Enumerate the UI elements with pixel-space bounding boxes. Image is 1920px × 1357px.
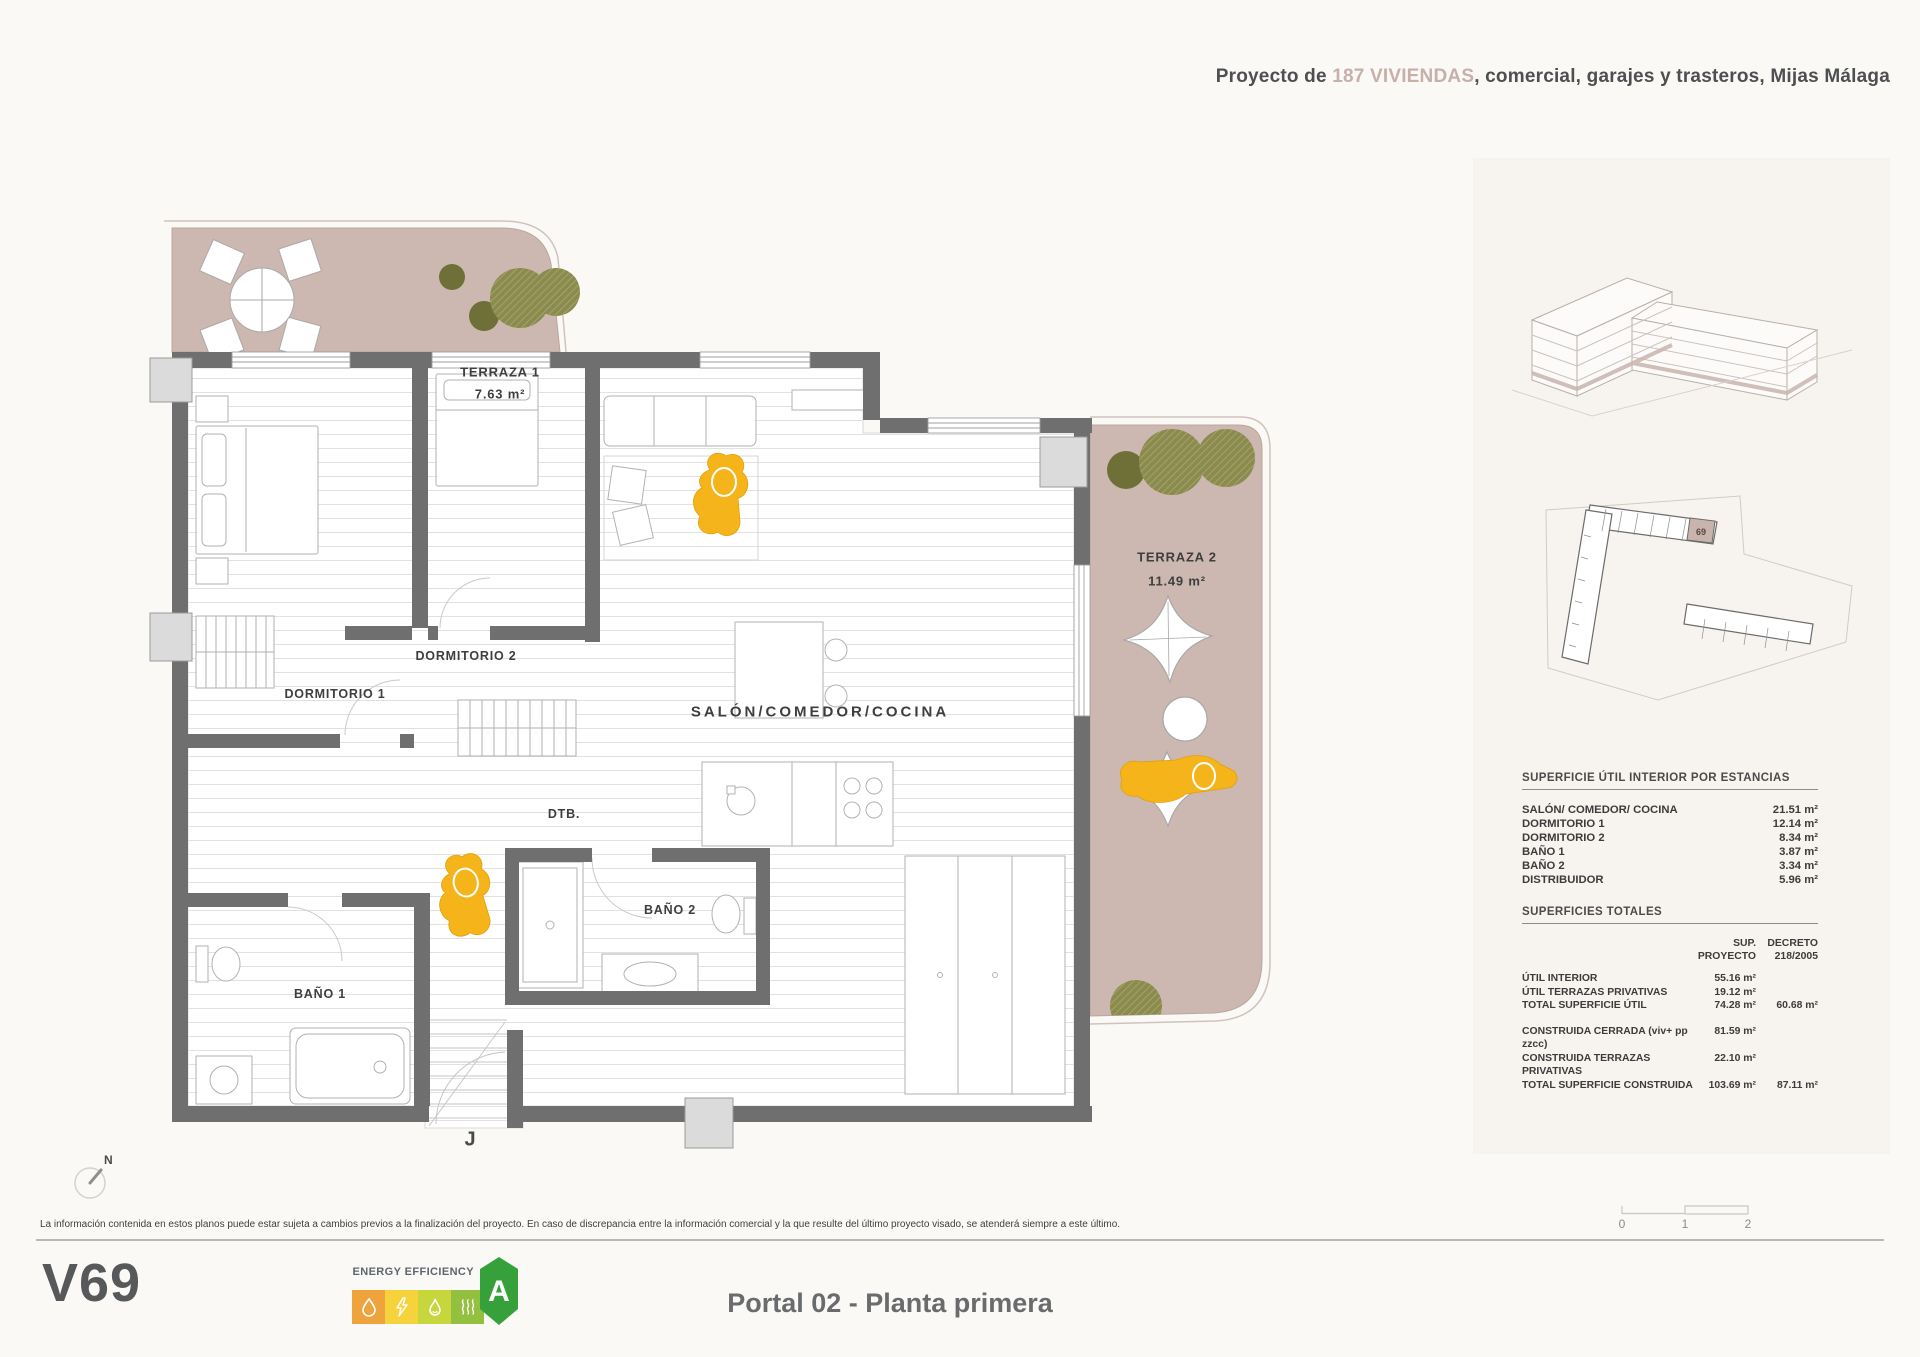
terraza1-area: 7.63 m²	[475, 387, 525, 402]
total-surfaces-table: SUPERFICIES TOTALES SUP.PROYECTO DECRETO…	[1522, 906, 1818, 1092]
room-label-dtb: DTB.	[548, 807, 580, 821]
energy-segments	[352, 1290, 484, 1324]
table-row: DORMITORIO 28.34 m²	[1522, 831, 1818, 845]
footer-divider	[36, 1239, 1884, 1241]
scale-label-2: 2	[1745, 1217, 1752, 1231]
table-row: ÚTIL INTERIOR55.16 m²	[1522, 972, 1818, 986]
north-compass: N	[62, 1150, 122, 1206]
entry-door-label: J	[464, 1129, 475, 1152]
table-row: CONSTRUIDA CERRADA (viv+ pp zzcc)81.59 m…	[1522, 1025, 1818, 1052]
scale-bar: 0 1 2	[1600, 1196, 1770, 1236]
room-label-bano2: BAÑO 2	[644, 903, 696, 917]
unit-code: V69	[42, 1252, 141, 1314]
terraza2-label: TERRAZA 2	[1137, 550, 1217, 565]
table-row: TOTAL SUPERFICIE ÚTIL74.28 m²60.68 m²	[1522, 999, 1818, 1013]
table-row: CONSTRUIDA TERRAZAS PRIVATIVAS22.10 m²	[1522, 1052, 1818, 1079]
terraza2-area: 11.49 m²	[1148, 574, 1206, 589]
kitchen-counter	[702, 762, 893, 846]
energy-rating-a-badge: A	[479, 1256, 519, 1326]
plan-title: Portal 02 - Planta primera	[560, 1288, 1220, 1319]
energy-segment-gas	[418, 1290, 451, 1324]
heat-waves-icon	[459, 1297, 477, 1317]
terraza-2-area	[1090, 417, 1270, 1032]
floor-key-plan: 69	[1540, 492, 1860, 710]
terraza-1-area	[164, 221, 580, 362]
key-plan-unit-number: 69	[1696, 527, 1706, 537]
wardrobe-distribuidor-left	[196, 616, 274, 688]
flame-icon	[426, 1297, 444, 1317]
energy-rating-letter: A	[488, 1275, 510, 1308]
interior-table-title: SUPERFICIE ÚTIL INTERIOR POR ESTANCIAS	[1522, 772, 1818, 790]
building-axonometric-sketch	[1497, 230, 1863, 440]
table-row: DISTRIBUIDOR5.96 m²	[1522, 873, 1818, 887]
closet-distribuidor	[458, 700, 576, 756]
energy-efficiency-label: ENERGY EFFICIENCY	[352, 1266, 474, 1278]
room-label-dormitorio1: DORMITORIO 1	[284, 687, 385, 701]
table-row: TOTAL SUPERFICIE CONSTRUIDA103.69 m²87.1…	[1522, 1079, 1818, 1093]
disclaimer-text: La información contenida en estos planos…	[40, 1219, 1120, 1230]
room-label-bano1: BAÑO 1	[294, 987, 346, 1001]
table-row: BAÑO 13.87 m²	[1522, 845, 1818, 859]
table-row: DORMITORIO 112.14 m²	[1522, 817, 1818, 831]
room-label-dormitorio2: DORMITORIO 2	[415, 649, 516, 663]
totals-table-header: SUP.PROYECTO DECRETO218/2005	[1522, 937, 1818, 963]
energy-segment-electricity	[385, 1290, 418, 1324]
interior-surfaces-table: SUPERFICIE ÚTIL INTERIOR POR ESTANCIAS S…	[1522, 772, 1818, 887]
scale-label-0: 0	[1619, 1217, 1626, 1231]
energy-efficiency-badge: ENERGY EFFICIENCY A	[352, 1262, 520, 1326]
energy-segment-water	[352, 1290, 385, 1324]
scale-label-1: 1	[1682, 1217, 1689, 1231]
table-row: SALÓN/ COMEDOR/ COCINA21.51 m²	[1522, 803, 1818, 817]
terraza1-label: TERRAZA 1	[460, 365, 540, 380]
totals-table-title: SUPERFICIES TOTALES	[1522, 906, 1818, 924]
table-row: BAÑO 23.34 m²	[1522, 859, 1818, 873]
room-label-salon: SALÓN/COMEDOR/COCINA	[691, 704, 949, 721]
bolt-icon	[393, 1297, 411, 1317]
plan-sheet-page: Proyecto de 187 VIVIENDAS, comercial, ga…	[0, 0, 1920, 1357]
table-row: ÚTIL TERRAZAS PRIVATIVAS19.12 m²	[1522, 986, 1818, 1000]
droplet-icon	[360, 1297, 378, 1317]
kitchen-cabinets	[905, 856, 1065, 1094]
compass-north-label: N	[104, 1153, 113, 1167]
